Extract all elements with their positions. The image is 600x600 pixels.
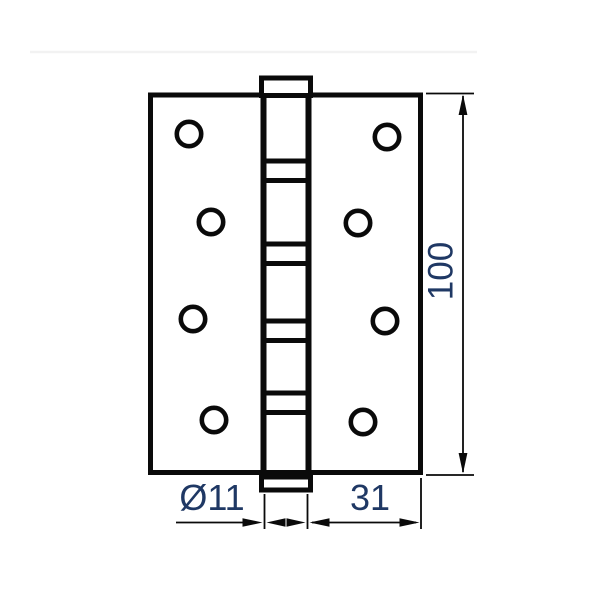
barrel-top-cap bbox=[262, 78, 311, 96]
bearing-bands bbox=[261, 161, 311, 413]
screw-hole bbox=[375, 125, 399, 149]
product-drawing-page: 100 Ø11 31 bbox=[0, 0, 600, 600]
hinge-technical-drawing: 100 Ø11 31 bbox=[0, 0, 600, 600]
arrow-down-icon bbox=[459, 453, 468, 474]
arrow-left-icon bbox=[267, 518, 286, 527]
height-dimension-label: 100 bbox=[422, 242, 461, 300]
dimension-leaf-width: 31 bbox=[310, 477, 422, 529]
arrow-right-icon bbox=[400, 518, 420, 527]
arrow-right-icon bbox=[287, 518, 306, 527]
screw-hole bbox=[199, 210, 223, 234]
arrow-right-icon bbox=[243, 518, 263, 527]
arrow-up-icon bbox=[459, 95, 468, 116]
screw-hole bbox=[373, 309, 397, 333]
dimension-height: 100 bbox=[422, 94, 475, 476]
arrow-left-icon bbox=[310, 518, 330, 527]
leaf-width-label: 31 bbox=[350, 477, 390, 518]
barrel-diameter-label: Ø11 bbox=[179, 477, 244, 518]
barrel-bottom-cap bbox=[262, 477, 311, 490]
screw-hole bbox=[181, 307, 205, 331]
screw-hole bbox=[177, 122, 201, 146]
screw-holes bbox=[177, 122, 399, 434]
screw-hole bbox=[351, 410, 375, 434]
screw-hole bbox=[202, 408, 226, 432]
hinge-leaf-outline bbox=[151, 95, 421, 473]
screw-hole bbox=[346, 211, 370, 235]
